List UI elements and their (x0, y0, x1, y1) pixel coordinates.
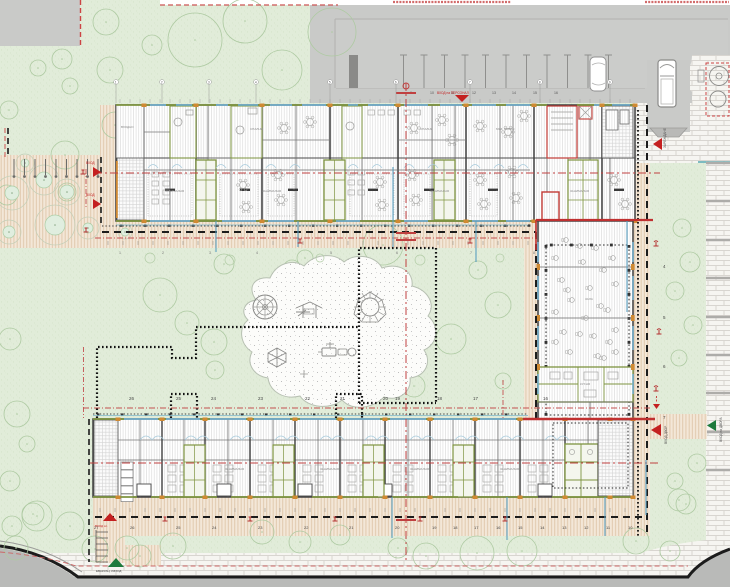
svg-text:9: 9 (609, 81, 611, 85)
svg-text:25: 25 (176, 396, 182, 401)
svg-text:ВХОДНО: ВХОДНО (121, 125, 134, 129)
svg-text:18: 18 (453, 525, 458, 530)
svg-text:ЗАРЕЖДАНЕ: ЗАРЕЖДАНЕ (663, 128, 667, 148)
svg-text:7: 7 (470, 251, 472, 255)
svg-text:27: 27 (94, 525, 99, 530)
svg-text:4: 4 (255, 81, 257, 85)
svg-text:12: 12 (584, 525, 589, 530)
svg-text:1: 1 (115, 81, 117, 85)
svg-text:16: 16 (543, 396, 549, 401)
svg-text:13: 13 (492, 91, 496, 95)
svg-text:СПАЛНЯ: СПАЛНЯ (250, 127, 263, 131)
svg-text:23: 23 (258, 525, 263, 530)
svg-text:ЗАНИМАЛНЯ: ЗАНИМАЛНЯ (262, 189, 281, 193)
svg-text:2: 2 (161, 81, 163, 85)
svg-text:ЗАНИМАЛНЯ: ЗАНИМАЛНЯ (500, 467, 519, 471)
svg-text:20: 20 (383, 396, 389, 401)
svg-text:1: 1 (119, 251, 121, 255)
svg-text:22: 22 (305, 396, 311, 401)
svg-text:13: 13 (562, 525, 567, 530)
svg-text:4: 4 (256, 251, 258, 255)
svg-text:19: 19 (432, 525, 437, 530)
svg-text:14: 14 (540, 525, 545, 530)
svg-text:6: 6 (395, 81, 397, 85)
svg-text:8: 8 (539, 81, 541, 85)
svg-text:23: 23 (258, 396, 264, 401)
svg-text:7: 7 (469, 81, 471, 85)
svg-text:СПАЛНЯ: СПАЛНЯ (420, 127, 433, 131)
svg-text:21: 21 (340, 396, 346, 401)
svg-text:16: 16 (554, 91, 558, 95)
svg-text:20: 20 (395, 525, 400, 530)
svg-text:22: 22 (304, 525, 309, 530)
svg-text:ЗАНИМАЛНЯ: ЗАНИМАЛНЯ (225, 467, 244, 471)
svg-text:8: 8 (533, 251, 535, 255)
svg-text:26: 26 (129, 396, 135, 401)
svg-text:ЗАНИМАЛНЯ: ЗАНИМАЛНЯ (320, 467, 339, 471)
svg-text:ЕВАКУАЦ. ИЗХОД: ЕВАКУАЦ. ИЗХОД (96, 569, 121, 573)
svg-text:ВХОД: ВХОД (86, 193, 95, 197)
svg-text:ЗАНИМАЛНЯ: ЗАНИМАЛНЯ (570, 189, 589, 193)
svg-text:17: 17 (473, 396, 479, 401)
svg-text:ВХОД на ДВОРА: ВХОД на ДВОРА (719, 417, 723, 442)
svg-text:5: 5 (329, 81, 331, 85)
svg-text:24: 24 (212, 525, 217, 530)
svg-text:2: 2 (162, 251, 164, 255)
svg-text:3: 3 (208, 81, 210, 85)
svg-text:21: 21 (349, 525, 354, 530)
svg-text:ЗАНИМАЛНЯ: ЗАНИМАЛНЯ (165, 189, 184, 193)
svg-text:ВХОД на ПЕРСОНАЛ: ВХОД на ПЕРСОНАЛ (437, 91, 469, 95)
svg-text:19: 19 (395, 396, 401, 401)
svg-text:ВХОД: ВХОД (86, 161, 95, 165)
svg-text:14: 14 (512, 91, 516, 95)
svg-text:10: 10 (628, 525, 633, 530)
svg-text:18: 18 (437, 396, 443, 401)
svg-text:10: 10 (430, 91, 434, 95)
svg-text:15: 15 (533, 91, 537, 95)
svg-text:6: 6 (396, 251, 398, 255)
svg-text:ВХОД ДВОР: ВХОД ДВОР (664, 426, 668, 444)
svg-text:ЗАЛА: ЗАЛА (585, 297, 593, 301)
svg-text:26: 26 (130, 525, 135, 530)
svg-text:17: 17 (474, 525, 479, 530)
svg-text:25: 25 (176, 525, 181, 530)
svg-text:12: 12 (472, 91, 476, 95)
svg-text:ЗАНИМАЛНЯ: ЗАНИМАЛНЯ (430, 189, 449, 193)
svg-text:5: 5 (330, 251, 332, 255)
svg-text:КУХНЯ: КУХНЯ (580, 382, 590, 386)
svg-text:15: 15 (518, 525, 523, 530)
svg-text:16: 16 (496, 525, 501, 530)
svg-text:ЗАНИМАЛНЯ: ЗАНИМАЛНЯ (410, 467, 429, 471)
svg-text:3: 3 (209, 251, 211, 255)
svg-text:МУЗ. САЛОН: МУЗ. САЛОН (496, 127, 514, 131)
svg-text:24: 24 (211, 396, 217, 401)
